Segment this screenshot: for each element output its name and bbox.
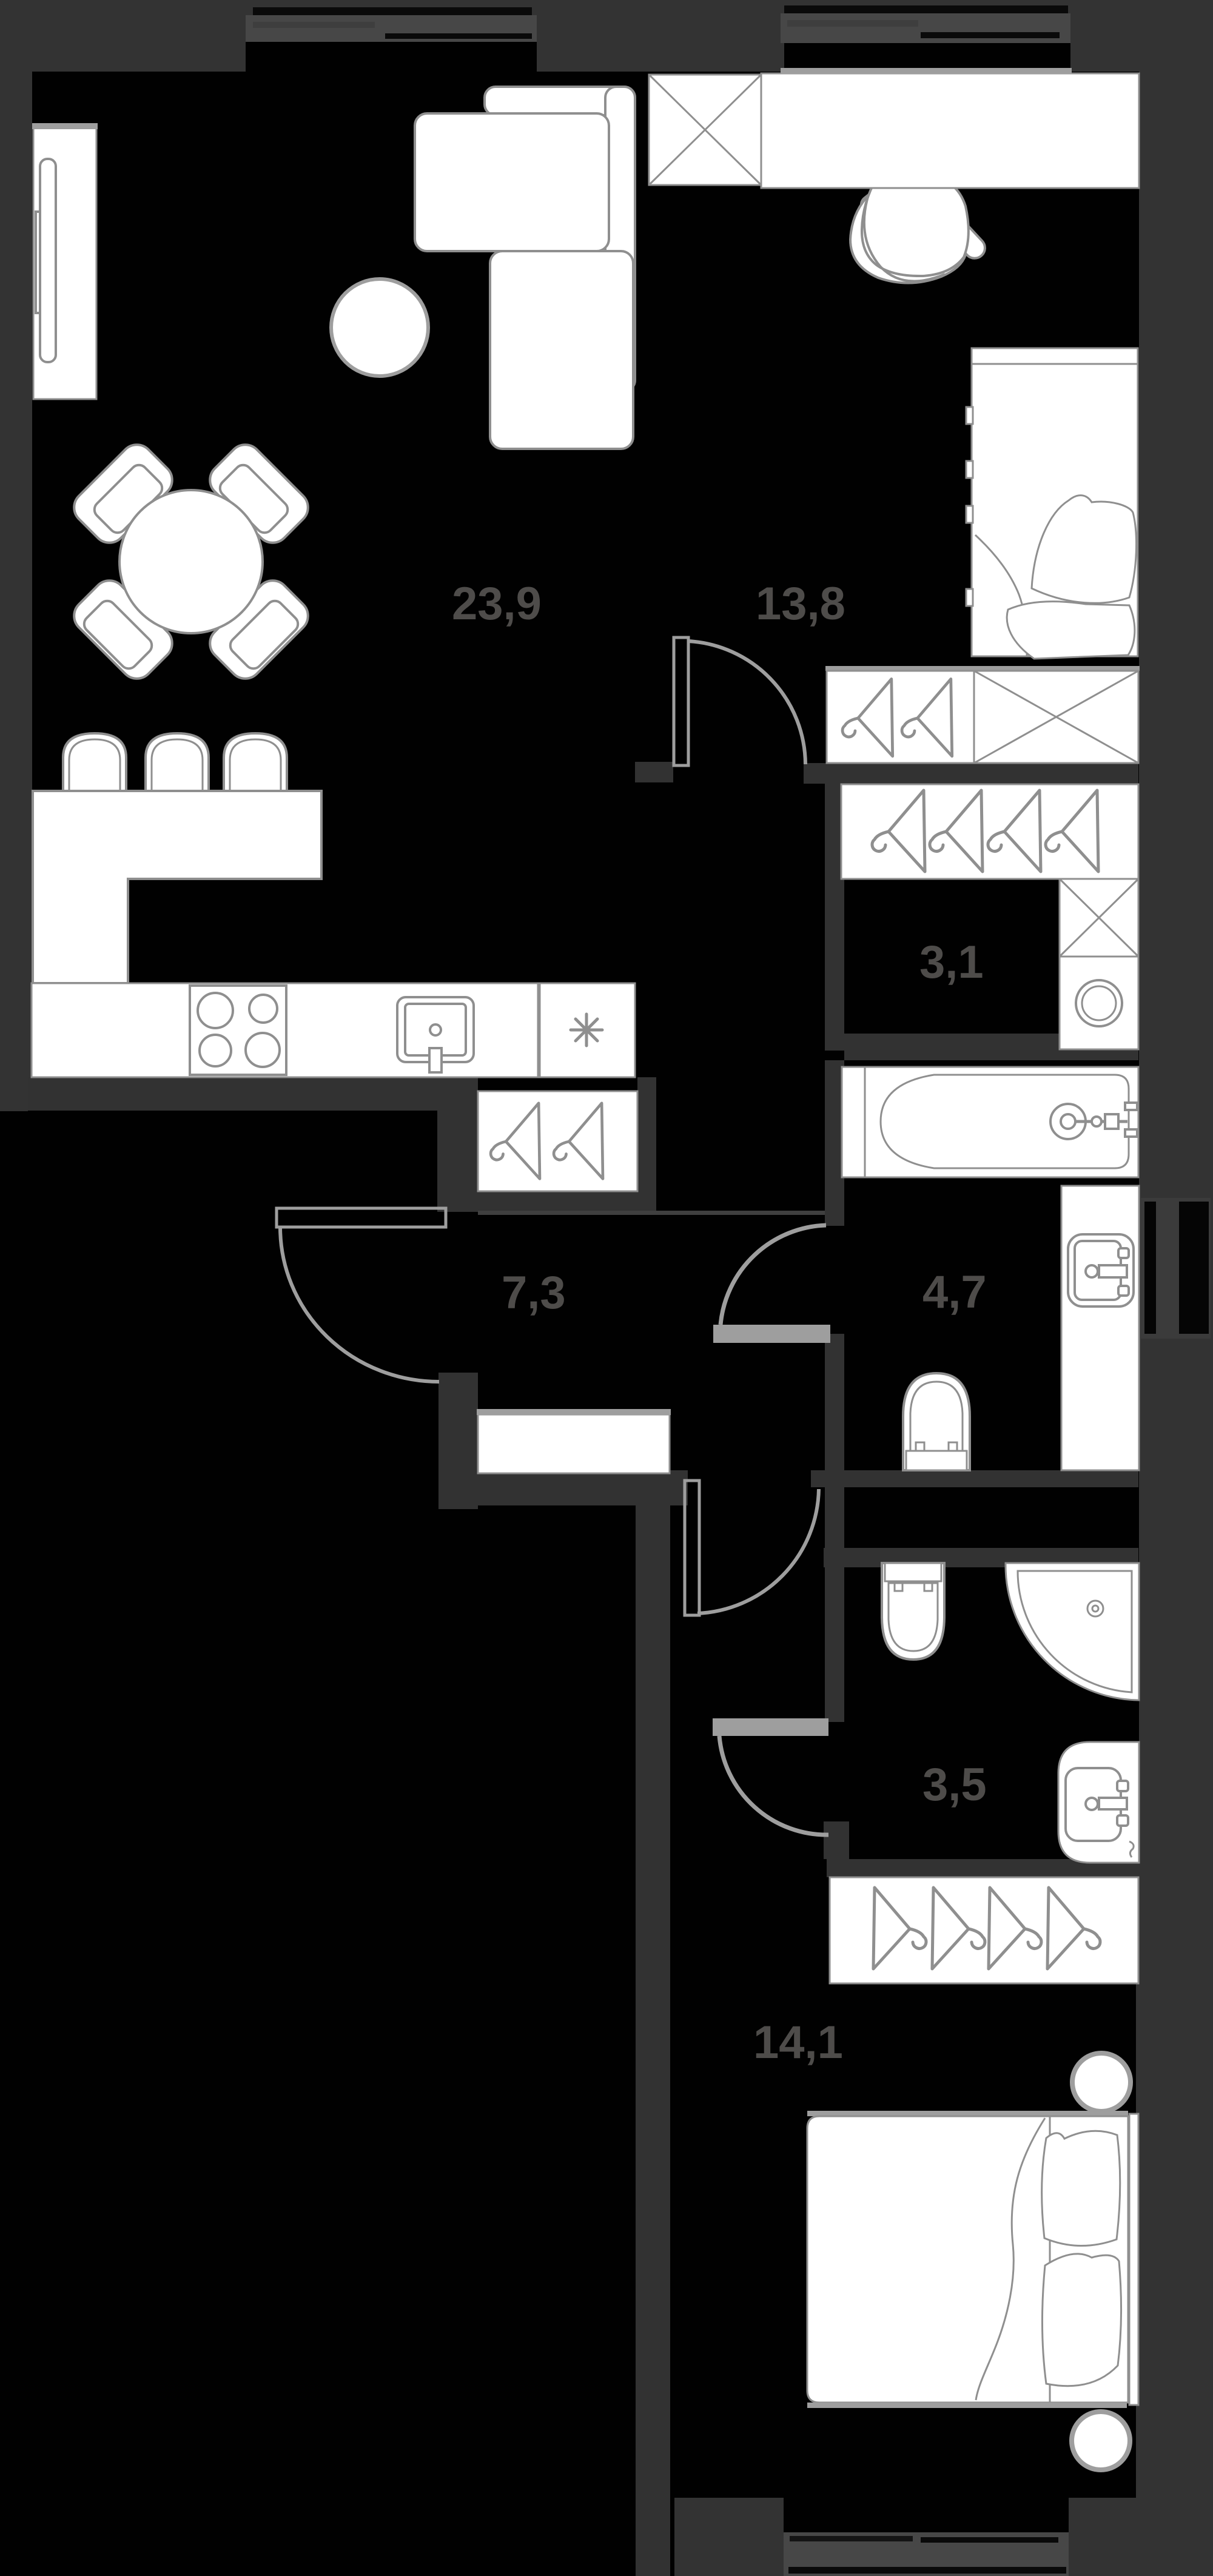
- svg-text:23,9: 23,9: [452, 578, 542, 630]
- svg-text:14,1: 14,1: [753, 2017, 843, 2068]
- svg-text:3,5: 3,5: [922, 1759, 987, 1811]
- svg-text:4,7: 4,7: [922, 1266, 987, 1318]
- svg-text:7,3: 7,3: [502, 1267, 566, 1319]
- svg-text:3,1: 3,1: [919, 937, 984, 988]
- svg-text:13,8: 13,8: [756, 578, 845, 630]
